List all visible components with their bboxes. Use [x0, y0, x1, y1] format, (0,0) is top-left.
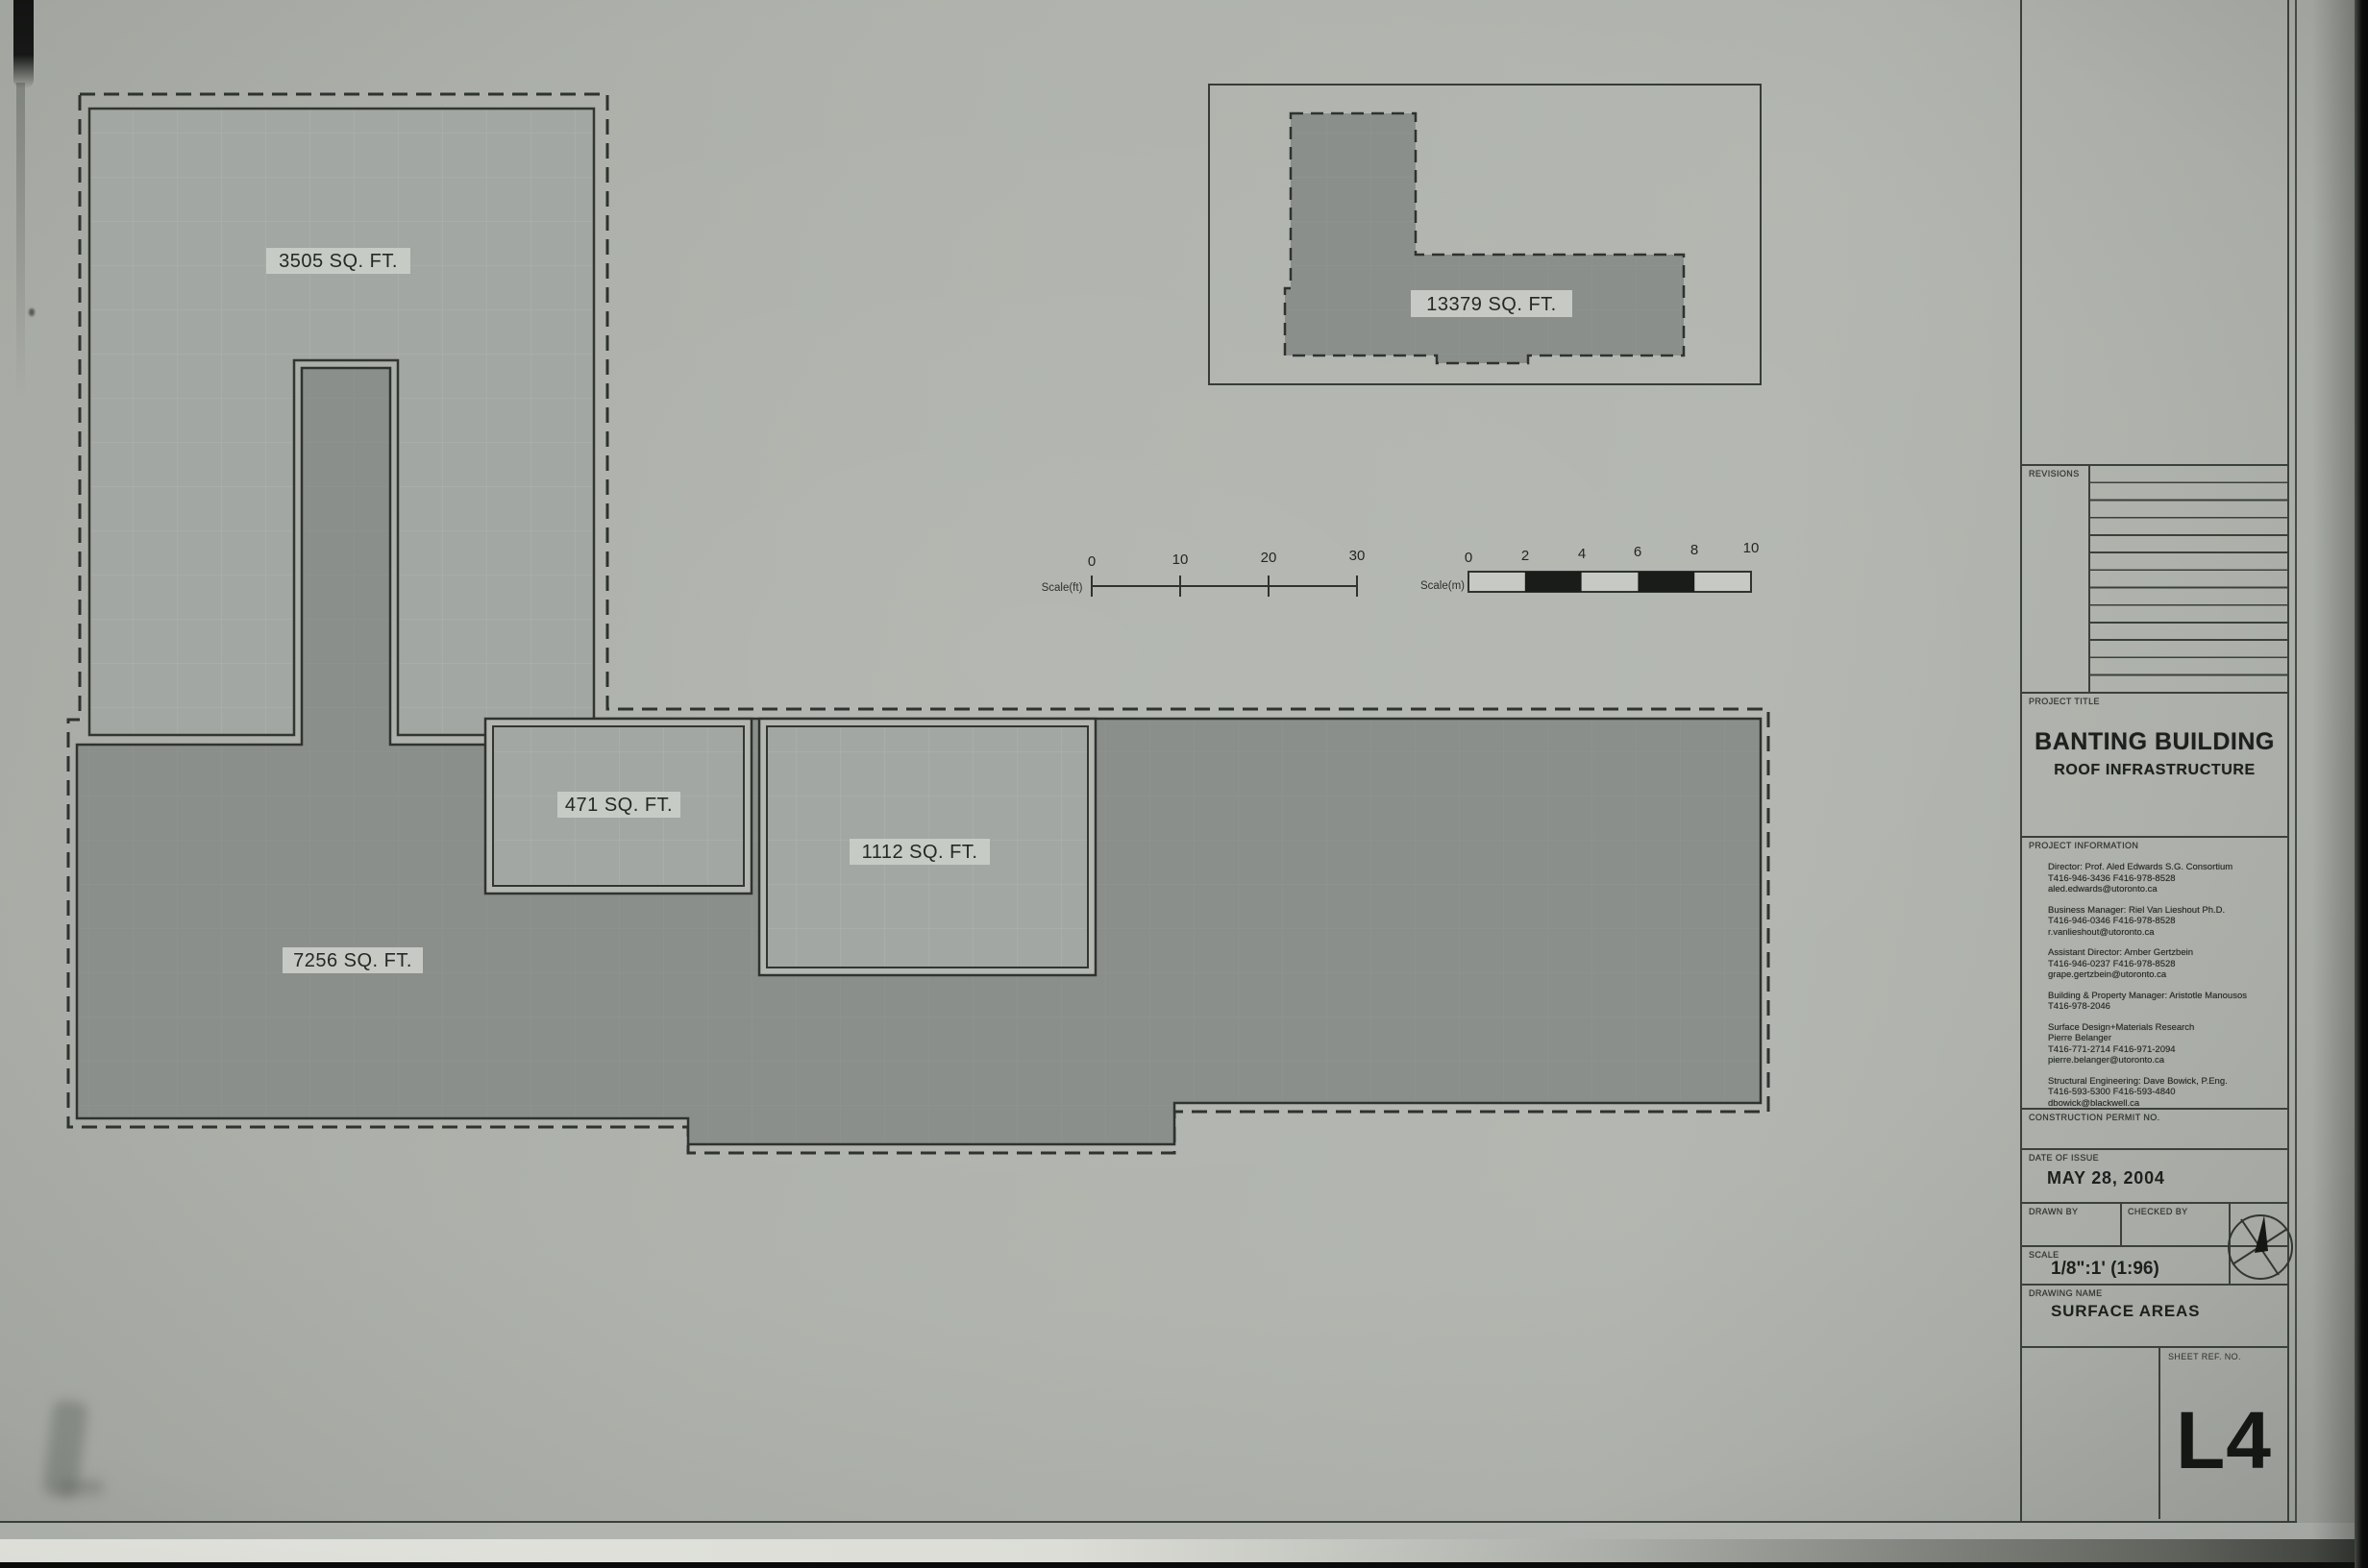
ink-mark-artifact — [13, 0, 34, 88]
project-title-section: PROJECT TITLE BANTING BUILDING ROOF INFR… — [2022, 694, 2287, 838]
scale-metres-black-segment — [1525, 572, 1582, 592]
scale-feet-tick-label: 30 — [1349, 548, 1366, 564]
scale-metres-bar — [1468, 572, 1751, 592]
sheet-ref-cell: SHEET REF. NO. L4 — [2158, 1348, 2287, 1519]
photo-edge-right — [2355, 0, 2368, 1568]
date-of-issue-label: DATE OF ISSUE — [2029, 1153, 2099, 1163]
scale-bar-feet: Scale(ft) 0 10 20 30 — [1042, 548, 1366, 597]
drawing-sheet-photo: Scale(ft) 0 10 20 30 Scale(m) 0 2 4 6 8 … — [0, 0, 2368, 1568]
project-information-section: PROJECT INFORMATION Director: Prof. Aled… — [2022, 838, 2287, 1110]
revisions-table — [2088, 466, 2287, 692]
scale-metres-tick-label: 6 — [1634, 544, 1641, 560]
scale-feet-label: Scale(ft) — [1042, 582, 1083, 594]
sheet-number: L4 — [2160, 1348, 2287, 1519]
title-block: REVISIONS PROJECT TITLE BANTING BUILDING… — [2020, 0, 2289, 1521]
contact-assistant-director: Assistant Director: Amber Gertzbein T416… — [2048, 947, 2283, 981]
scale-metres-tick-label: 0 — [1465, 550, 1472, 566]
area-label-471: 471 SQ. FT. — [557, 792, 680, 818]
photo-edge-right-shadow — [2312, 0, 2356, 1568]
revisions-label: REVISIONS — [2029, 469, 2080, 478]
contact-list: Director: Prof. Aled Edwards S.G. Consor… — [2048, 862, 2283, 1118]
area-label-13379: 13379 SQ. FT. — [1411, 290, 1572, 317]
scale-metres-tick-label: 8 — [1690, 542, 1698, 558]
photo-edge-bottom — [0, 1562, 2368, 1568]
area-label-text: 3505 SQ. FT. — [279, 251, 398, 272]
scale-feet-tick-label: 10 — [1172, 551, 1189, 568]
north-arrow-icon — [2227, 1207, 2294, 1287]
contact-director: Director: Prof. Aled Edwards S.G. Consor… — [2048, 862, 2283, 895]
sheet-ref-section: SHEET REF. NO. L4 — [2022, 1348, 2287, 1519]
area-label-1112: 1112 SQ. FT. — [850, 839, 990, 865]
drawn-by-label: DRAWN BY — [2029, 1207, 2078, 1216]
pencil-smudge — [58, 1480, 104, 1495]
area-label-text: 1112 SQ. FT. — [862, 842, 978, 863]
scale-metres-tick-label: 2 — [1521, 548, 1529, 564]
scale-feet-tick-label: 0 — [1088, 553, 1096, 570]
adjacent-building-area — [1285, 113, 1684, 363]
cell-divider — [2120, 1204, 2122, 1245]
area-label-text: 471 SQ. FT. — [565, 795, 673, 816]
contact-surface-design: Surface Design+Materials Research Pierre… — [2048, 1022, 2283, 1066]
scale-bar-metres: Scale(m) 0 2 4 6 8 10 — [1420, 540, 1759, 592]
construction-permit-label: CONSTRUCTION PERMIT NO. — [2029, 1113, 2160, 1122]
area-label-text: 7256 SQ. FT. — [293, 950, 412, 971]
title-block-spare-cell — [2022, 0, 2287, 466]
date-of-issue-value: MAY 28, 2004 — [2047, 1168, 2165, 1188]
checked-by-label: CHECKED BY — [2128, 1207, 2188, 1216]
construction-permit-section: CONSTRUCTION PERMIT NO. — [2022, 1110, 2287, 1150]
drawing-name-value: SURFACE AREAS — [2051, 1302, 2200, 1321]
sheet-border-right — [2295, 0, 2297, 1521]
roof-plan-svg: Scale(ft) 0 10 20 30 Scale(m) 0 2 4 6 8 … — [0, 0, 2368, 1568]
paper-edge-highlight — [0, 1539, 2368, 1564]
ink-streak-artifact — [16, 83, 25, 400]
scale-value: 1/8":1' (1:96) — [2051, 1259, 2159, 1280]
scale-metres-black-segment — [1638, 572, 1694, 592]
drawing-name-section: DRAWING NAME SURFACE AREAS — [2022, 1286, 2287, 1348]
contact-structural-engineering: Structural Engineering: Dave Bowick, P.E… — [2048, 1076, 2283, 1110]
contact-business-manager: Business Manager: Riel Van Lieshout Ph.D… — [2048, 905, 2283, 939]
project-subtitle: ROOF INFRASTRUCTURE — [2026, 762, 2283, 779]
scale-feet-tick-label: 20 — [1261, 550, 1277, 566]
project-title-label: PROJECT TITLE — [2029, 697, 2100, 706]
area-label-7256: 7256 SQ. FT. — [283, 947, 423, 973]
area-label-text: 13379 SQ. FT. — [1426, 294, 1556, 315]
area-label-3505: 3505 SQ. FT. — [266, 248, 410, 274]
project-information-label: PROJECT INFORMATION — [2029, 841, 2138, 850]
dust-speck — [29, 308, 35, 316]
revisions-section: REVISIONS — [2022, 466, 2287, 694]
scale-metres-label: Scale(m) — [1420, 580, 1465, 592]
scale-metres-tick-label: 4 — [1578, 546, 1586, 562]
contact-property-manager: Building & Property Manager: Aristotle M… — [2048, 991, 2283, 1013]
scale-metres-tick-label: 10 — [1743, 540, 1760, 556]
date-of-issue-section: DATE OF ISSUE MAY 28, 2004 — [2022, 1150, 2287, 1204]
project-title: BANTING BUILDING — [2026, 728, 2283, 756]
drawing-name-label: DRAWING NAME — [2029, 1288, 2102, 1298]
paper-edge-band — [0, 1523, 2368, 1539]
